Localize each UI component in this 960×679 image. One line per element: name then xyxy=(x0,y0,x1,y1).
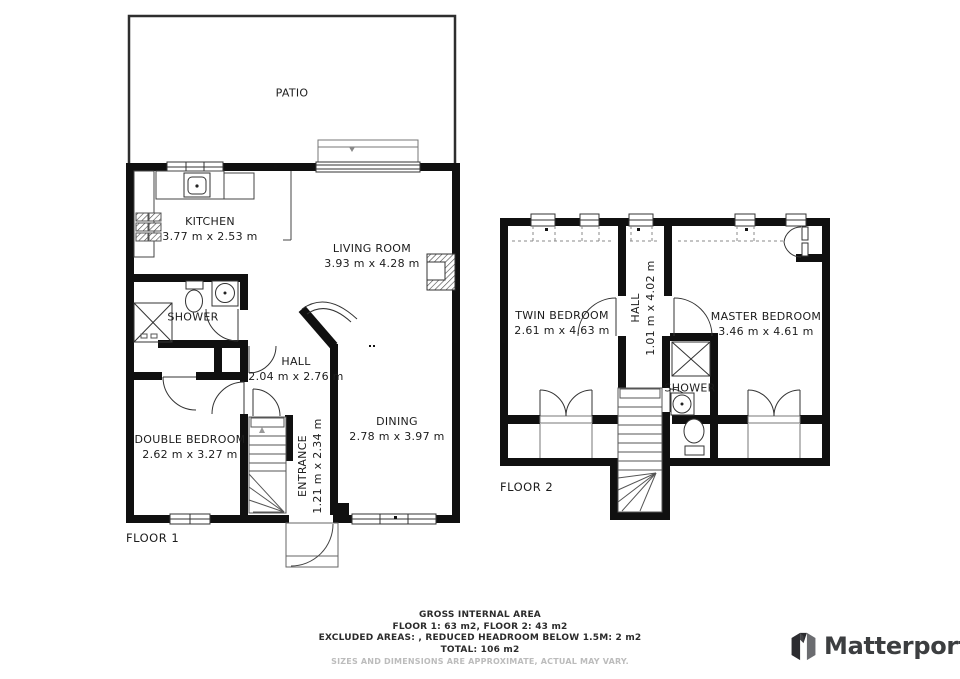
floor2-walls xyxy=(500,218,830,520)
room-dims: 1.01 m x 4.02 m xyxy=(643,260,658,355)
diagonal-wall xyxy=(302,309,334,346)
room-label-master-bedroom: MASTER BEDROOM 3.46 m x 4.61 m xyxy=(711,309,821,339)
room-name: SHOWER xyxy=(167,310,218,325)
room-label-entrance: ENTRANCE 1.21 m x 2.34 m xyxy=(295,418,325,513)
floor2-sink-icon xyxy=(671,393,694,415)
entrance-porch xyxy=(286,523,338,567)
bathroom-sink-icon xyxy=(212,281,238,306)
floor2-shower-unit xyxy=(672,342,710,376)
room-name: LIVING ROOM xyxy=(324,241,419,256)
room-label-patio: PATIO xyxy=(276,86,309,101)
room-name: ENTRANCE xyxy=(295,418,310,513)
matterport-icon xyxy=(789,631,818,662)
kitchen-sink xyxy=(184,173,210,197)
room-dims: 2.61 m x 4.63 m xyxy=(514,323,609,338)
room-name: MASTER BEDROOM xyxy=(711,309,821,324)
room-label-hall-2: HALL 1.01 m x 4.02 m xyxy=(628,260,658,355)
stove-icon xyxy=(136,213,161,241)
floor2-label: FLOOR 2 xyxy=(500,480,553,494)
floor2-stairs xyxy=(618,388,662,512)
room-label-shower-2: SHOWER xyxy=(664,381,715,396)
room-name: PATIO xyxy=(276,86,309,101)
room-dims: 3.93 m x 4.28 m xyxy=(324,256,419,271)
floor2-plan xyxy=(500,214,830,520)
master-closet xyxy=(784,227,808,257)
room-dims: 2.62 m x 3.27 m xyxy=(135,447,246,462)
room-dims: 1.21 m x 2.34 m xyxy=(310,418,325,513)
room-dims: 3.77 m x 2.53 m xyxy=(162,229,257,244)
room-label-living-room: LIVING ROOM 3.93 m x 4.28 m xyxy=(324,241,419,271)
room-label-shower-1: SHOWER xyxy=(167,310,218,325)
gross-internal-area-title: GROSS INTERNAL AREA xyxy=(0,610,960,622)
floorplan-page: PATIO KITCHEN 3.77 m x 2.53 m LIVING ROO… xyxy=(0,0,960,679)
room-dims: 2.04 m x 2.76 m xyxy=(248,369,343,384)
toilet-icon xyxy=(186,281,204,312)
room-name: DINING xyxy=(349,414,444,429)
room-name: SHOWER xyxy=(664,381,715,396)
floorplan-drawing xyxy=(0,0,960,679)
room-label-dining: DINING 2.78 m x 3.97 m xyxy=(349,414,444,444)
room-name: HALL xyxy=(628,260,643,355)
room-label-hall-1: HALL 2.04 m x 2.76 m xyxy=(248,354,343,384)
floor1-label: FLOOR 1 xyxy=(126,531,179,545)
reduced-headroom-lines xyxy=(512,226,786,241)
room-label-twin-bedroom: TWIN BEDROOM 2.61 m x 4.63 m xyxy=(514,308,609,338)
room-name: HALL xyxy=(248,354,343,369)
matterport-logo: Matterport xyxy=(789,631,960,662)
room-label-double-bedroom: DOUBLE BEDROOM 2.62 m x 3.27 m xyxy=(135,432,246,462)
shower-unit xyxy=(134,303,172,342)
floor2-toilet-icon xyxy=(684,419,704,455)
floor1-stairs xyxy=(249,417,286,513)
room-name: TWIN BEDROOM xyxy=(514,308,609,323)
room-name: KITCHEN xyxy=(162,214,257,229)
fireplace-icon xyxy=(427,254,455,290)
room-dims: 2.78 m x 3.97 m xyxy=(349,429,444,444)
room-name: DOUBLE BEDROOM xyxy=(135,432,246,447)
matterport-wordmark: Matterport xyxy=(824,631,960,662)
room-dims: 3.46 m x 4.61 m xyxy=(711,324,821,339)
room-label-kitchen: KITCHEN 3.77 m x 2.53 m xyxy=(162,214,257,244)
